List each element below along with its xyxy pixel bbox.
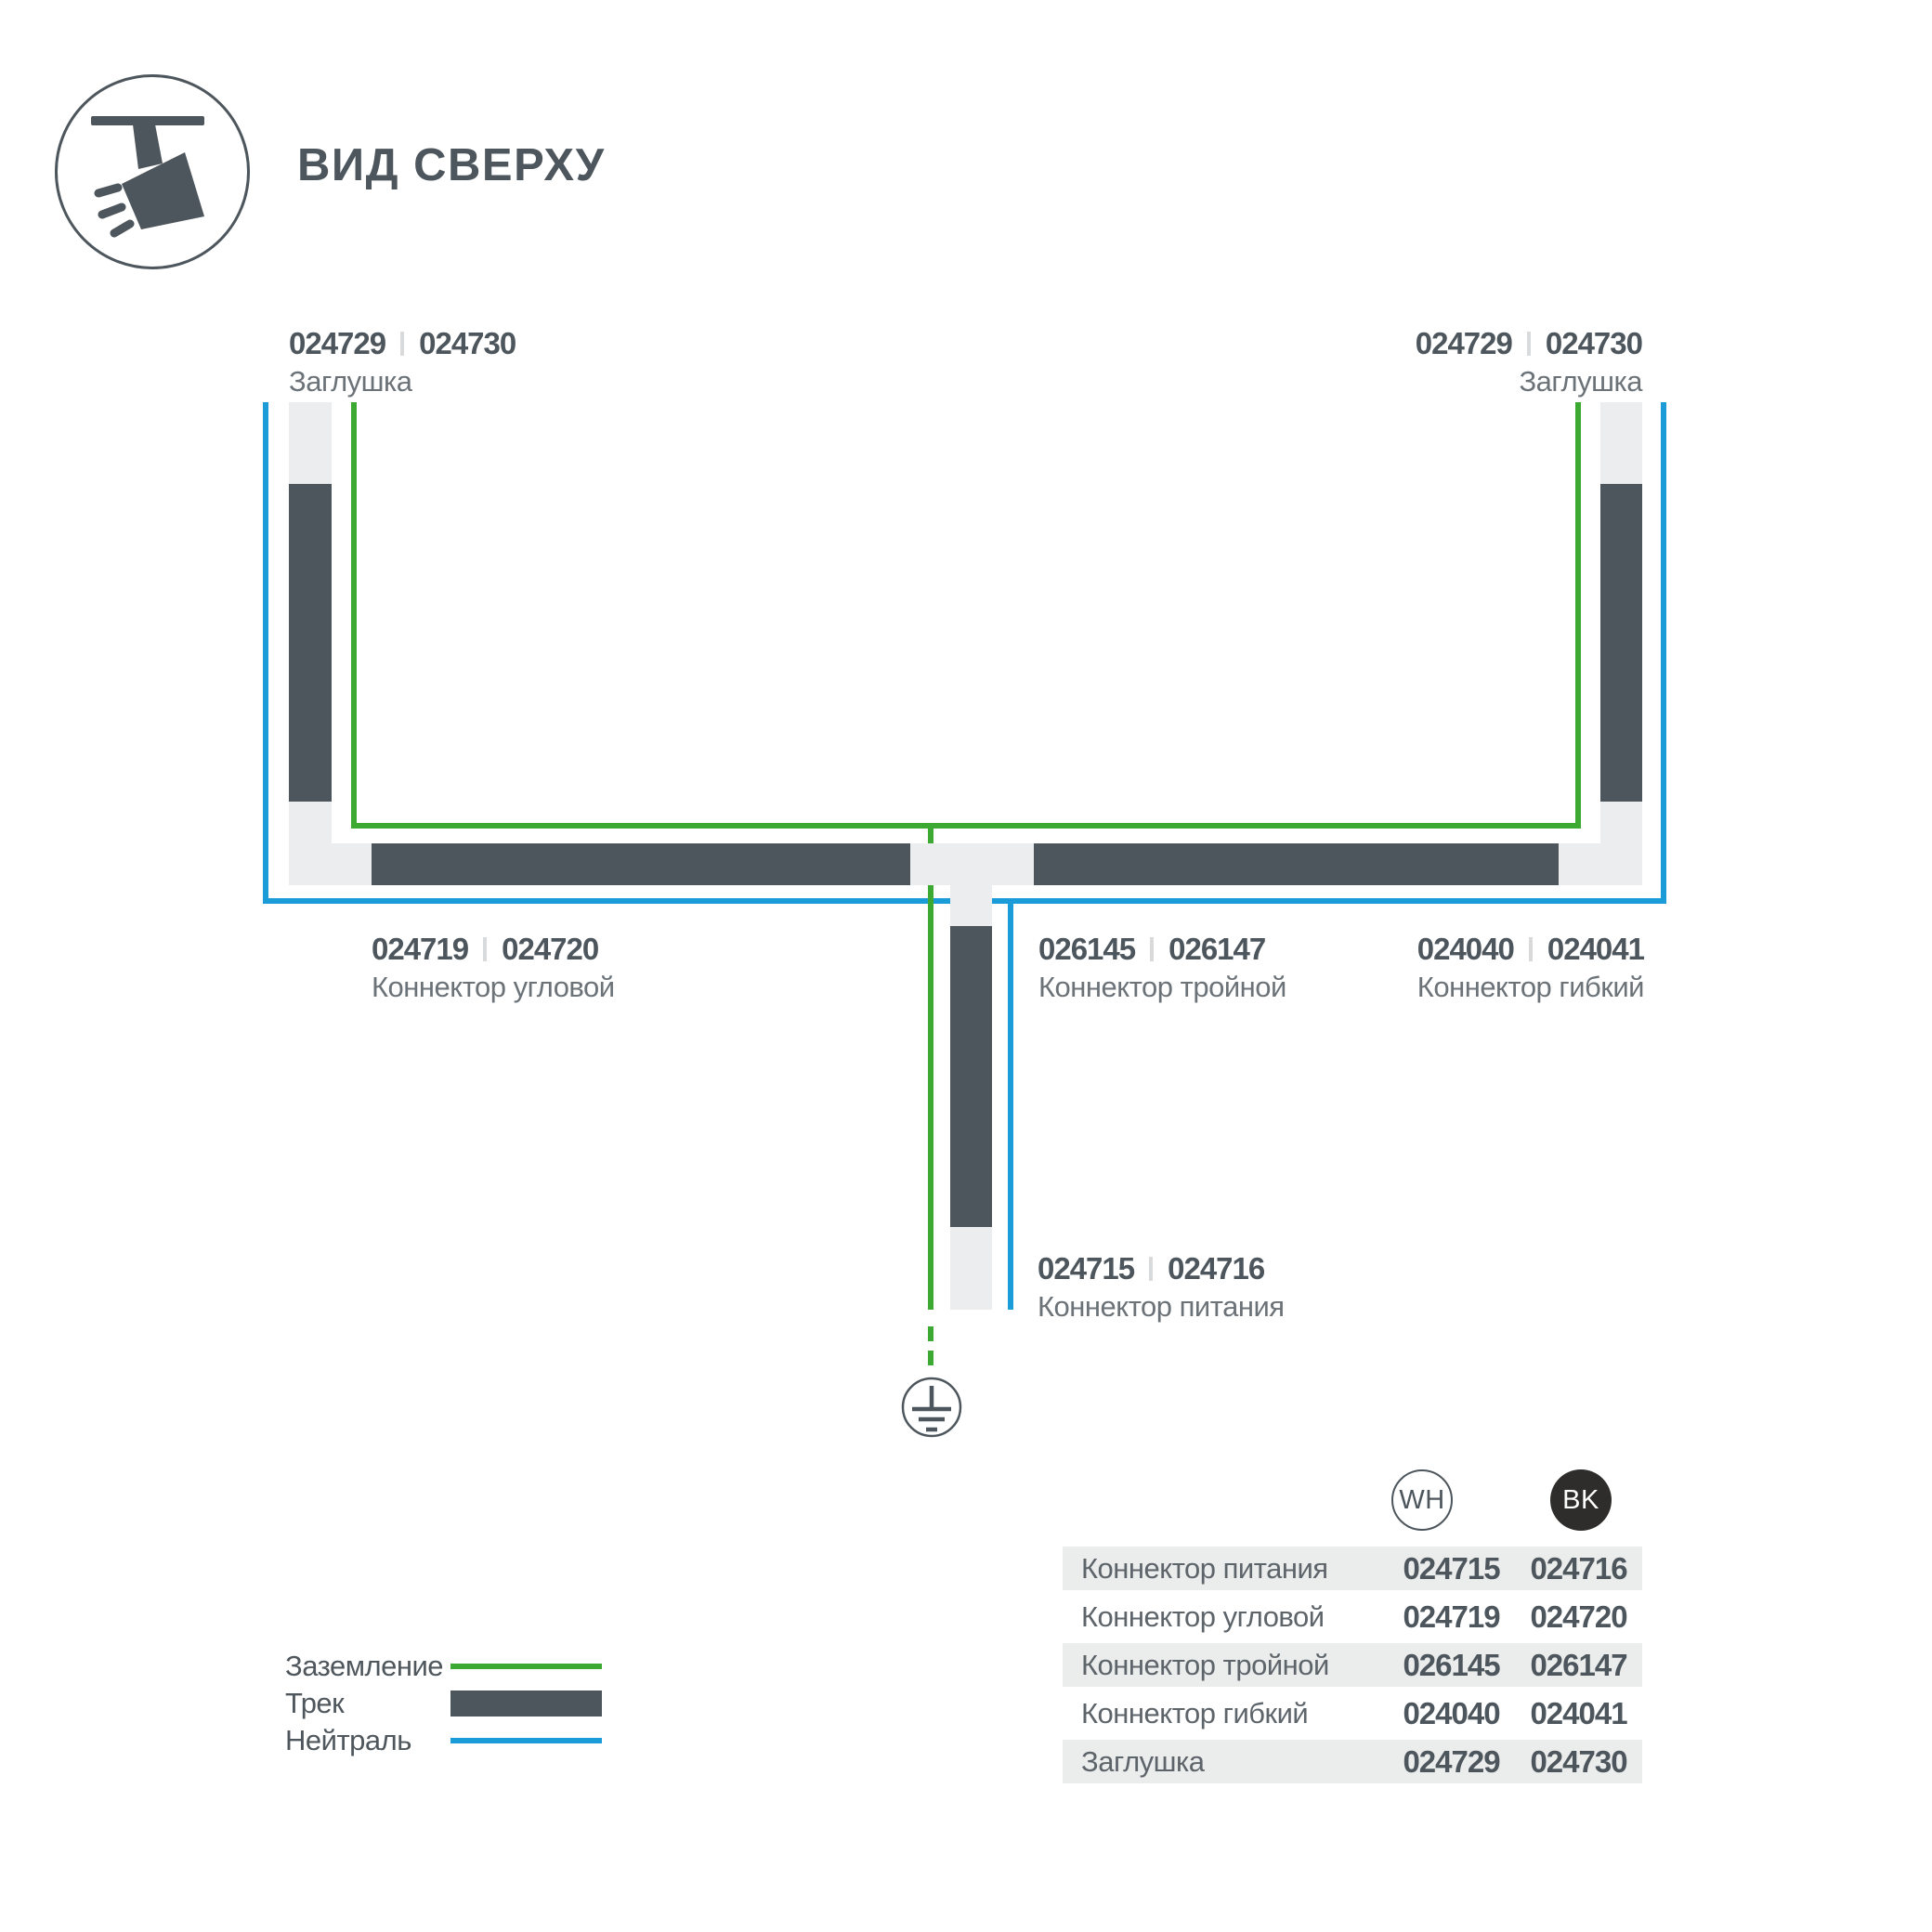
- row-wh-number: 024719: [1388, 1599, 1515, 1635]
- part-number-bk: 024720: [502, 932, 598, 967]
- label-flexible-connector: 024040 024041 Коннектор гибкий: [1417, 932, 1644, 1004]
- row-name: Коннектор тройной: [1063, 1649, 1388, 1682]
- corner-connector-left: [289, 802, 372, 885]
- table-row: Коннектор гибкий 024040 024041: [1063, 1691, 1642, 1735]
- part-name: Заглушка: [289, 364, 516, 398]
- table-row: Коннектор угловой 024719 024720: [1063, 1595, 1642, 1638]
- ground-line: [354, 402, 1578, 826]
- legend-label: Нейтраль: [285, 1724, 450, 1757]
- separator: [1150, 937, 1154, 961]
- part-numbers: 024715 024716: [1038, 1251, 1285, 1286]
- row-bk-number: 024716: [1515, 1551, 1642, 1586]
- separator: [483, 937, 487, 961]
- track-horizontal-left: [372, 843, 910, 885]
- legend-swatch-ground: [450, 1664, 602, 1669]
- label-power-connector: 024715 024716 Коннектор питания: [1038, 1251, 1285, 1324]
- earth-ground-icon: [903, 1378, 960, 1436]
- part-numbers: 024719 024720: [372, 932, 615, 967]
- legend-swatch-track: [450, 1690, 602, 1717]
- part-name: Заглушка: [1416, 364, 1642, 398]
- separator: [1529, 937, 1533, 961]
- legend-item-ground: Заземление: [285, 1648, 602, 1685]
- part-name: Коннектор тройной: [1038, 970, 1286, 1004]
- part-number-wh: 024715: [1038, 1251, 1134, 1286]
- part-number-wh: 024729: [289, 326, 385, 361]
- row-wh-number: 024715: [1388, 1551, 1515, 1586]
- part-name: Коннектор питания: [1038, 1289, 1285, 1324]
- part-number-wh: 026145: [1038, 932, 1135, 967]
- separator: [1527, 332, 1531, 356]
- part-number-wh: 024040: [1417, 932, 1514, 967]
- row-name: Коннектор гибкий: [1063, 1697, 1388, 1730]
- legend-label: Заземление: [285, 1650, 450, 1683]
- legend-item-neutral: Нейтраль: [285, 1722, 602, 1759]
- part-number-bk: 026147: [1168, 932, 1265, 967]
- row-wh-number: 026145: [1388, 1648, 1515, 1683]
- track-left: [289, 484, 332, 802]
- part-number-bk: 024716: [1168, 1251, 1264, 1286]
- label-cap-right: 024729 024730 Заглушка: [1416, 326, 1642, 398]
- end-cap-left: [289, 402, 332, 484]
- track-right: [1600, 484, 1642, 802]
- parts-table: WH BK Коннектор питания 024715 024716 Ко…: [1063, 1469, 1642, 1788]
- table-row: Заглушка 024729 024730: [1063, 1740, 1642, 1783]
- row-bk-number: 026147: [1515, 1648, 1642, 1683]
- part-numbers: 024729 024730: [289, 326, 516, 361]
- label-cap-left: 024729 024730 Заглушка: [289, 326, 516, 398]
- part-number-wh: 024719: [372, 932, 468, 967]
- part-number-wh: 024729: [1416, 326, 1512, 361]
- part-number-bk: 024730: [1546, 326, 1642, 361]
- corner-connector-right: [1559, 802, 1642, 885]
- row-wh-number: 024729: [1388, 1744, 1515, 1780]
- part-number-bk: 024041: [1547, 932, 1644, 967]
- label-triple-connector: 026145 026147 Коннектор тройной: [1038, 932, 1286, 1004]
- track-center-drop: [950, 926, 992, 1227]
- end-cap-right: [1600, 402, 1642, 484]
- part-numbers: 024729 024730: [1416, 326, 1642, 361]
- part-numbers: 024040 024041: [1417, 932, 1644, 967]
- row-wh-number: 024040: [1388, 1696, 1515, 1731]
- row-name: Коннектор питания: [1063, 1552, 1388, 1586]
- power-connector: [950, 1227, 992, 1310]
- table-row: Коннектор питания 024715 024716: [1063, 1547, 1642, 1590]
- legend: Заземление Трек Нейтраль: [285, 1648, 602, 1759]
- row-bk-number: 024720: [1515, 1599, 1642, 1635]
- row-name: Заглушка: [1063, 1745, 1388, 1779]
- part-number-bk: 024730: [419, 326, 516, 361]
- color-badge-bk: BK: [1550, 1469, 1612, 1531]
- part-name: Коннектор гибкий: [1417, 970, 1644, 1004]
- separator: [400, 332, 404, 356]
- legend-label: Трек: [285, 1687, 450, 1720]
- legend-item-track: Трек: [285, 1685, 602, 1722]
- part-name: Коннектор угловой: [372, 970, 615, 1004]
- separator: [1149, 1257, 1153, 1281]
- parts-table-header: WH BK: [1063, 1469, 1642, 1547]
- row-bk-number: 024730: [1515, 1744, 1642, 1780]
- page: ВИД СВЕРХУ: [0, 0, 1932, 1932]
- table-row: Коннектор тройной 026145 026147: [1063, 1643, 1642, 1687]
- track-horizontal-right: [1034, 843, 1559, 885]
- row-bk-number: 024041: [1515, 1696, 1642, 1731]
- part-numbers: 026145 026147: [1038, 932, 1286, 967]
- legend-swatch-neutral: [450, 1738, 602, 1743]
- color-badge-wh: WH: [1391, 1469, 1453, 1531]
- row-name: Коннектор угловой: [1063, 1600, 1388, 1634]
- label-corner-connector: 024719 024720 Коннектор угловой: [372, 932, 615, 1004]
